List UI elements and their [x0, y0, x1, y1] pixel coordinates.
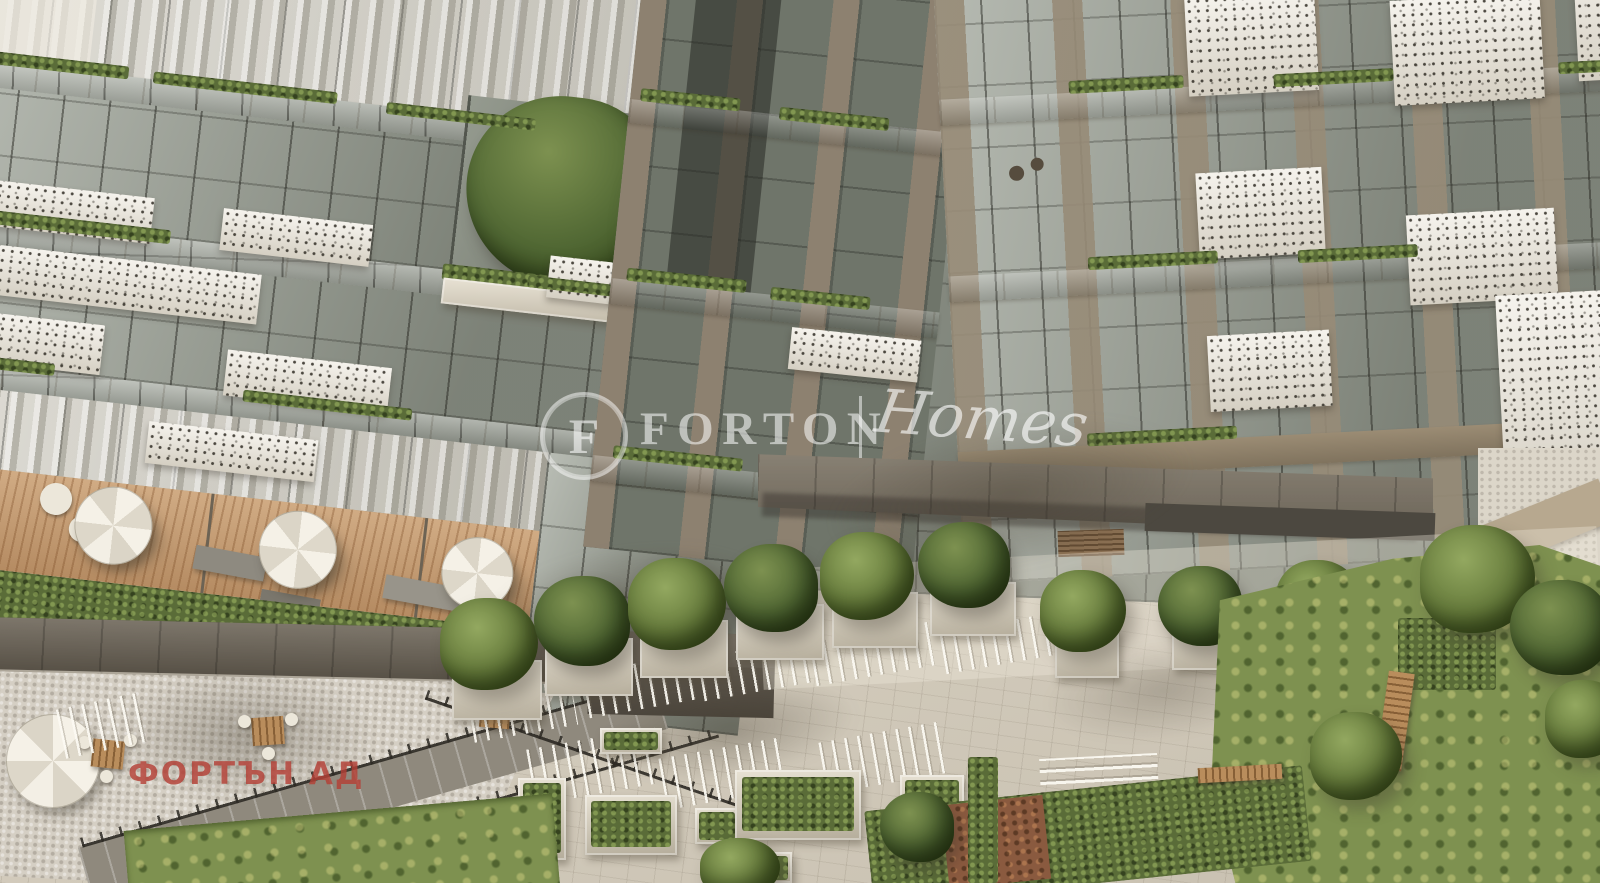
shrub-planter — [585, 795, 677, 855]
lawn-tree — [1545, 680, 1600, 758]
aerial-architectural-render: F FORTON Homes ФОРТЪН АД — [0, 0, 1600, 883]
garden-tree — [700, 838, 780, 883]
logo-letter: F — [569, 407, 600, 465]
plaza-tree — [918, 522, 1010, 608]
brand-divider — [859, 396, 862, 458]
cafe-table-set — [238, 705, 298, 759]
plaza-tree — [534, 576, 630, 666]
brand-name: FORTON — [640, 402, 889, 456]
perforated-balcony — [1406, 208, 1559, 306]
shrub-planter — [735, 770, 861, 840]
company-stamp: ФОРТЪН АД — [128, 756, 364, 792]
plaza-tree — [724, 544, 818, 632]
perforated-balcony — [1207, 330, 1333, 412]
brand-suffix: Homes — [870, 377, 1093, 461]
perforated-balcony — [1195, 167, 1325, 259]
logo-circle: F — [540, 392, 628, 480]
watermark: F FORTON Homes — [540, 388, 1070, 478]
perforated-balcony — [1390, 0, 1545, 106]
garden-tree — [880, 792, 954, 862]
hedge-strip — [968, 757, 998, 883]
shrub-planter — [600, 728, 662, 754]
